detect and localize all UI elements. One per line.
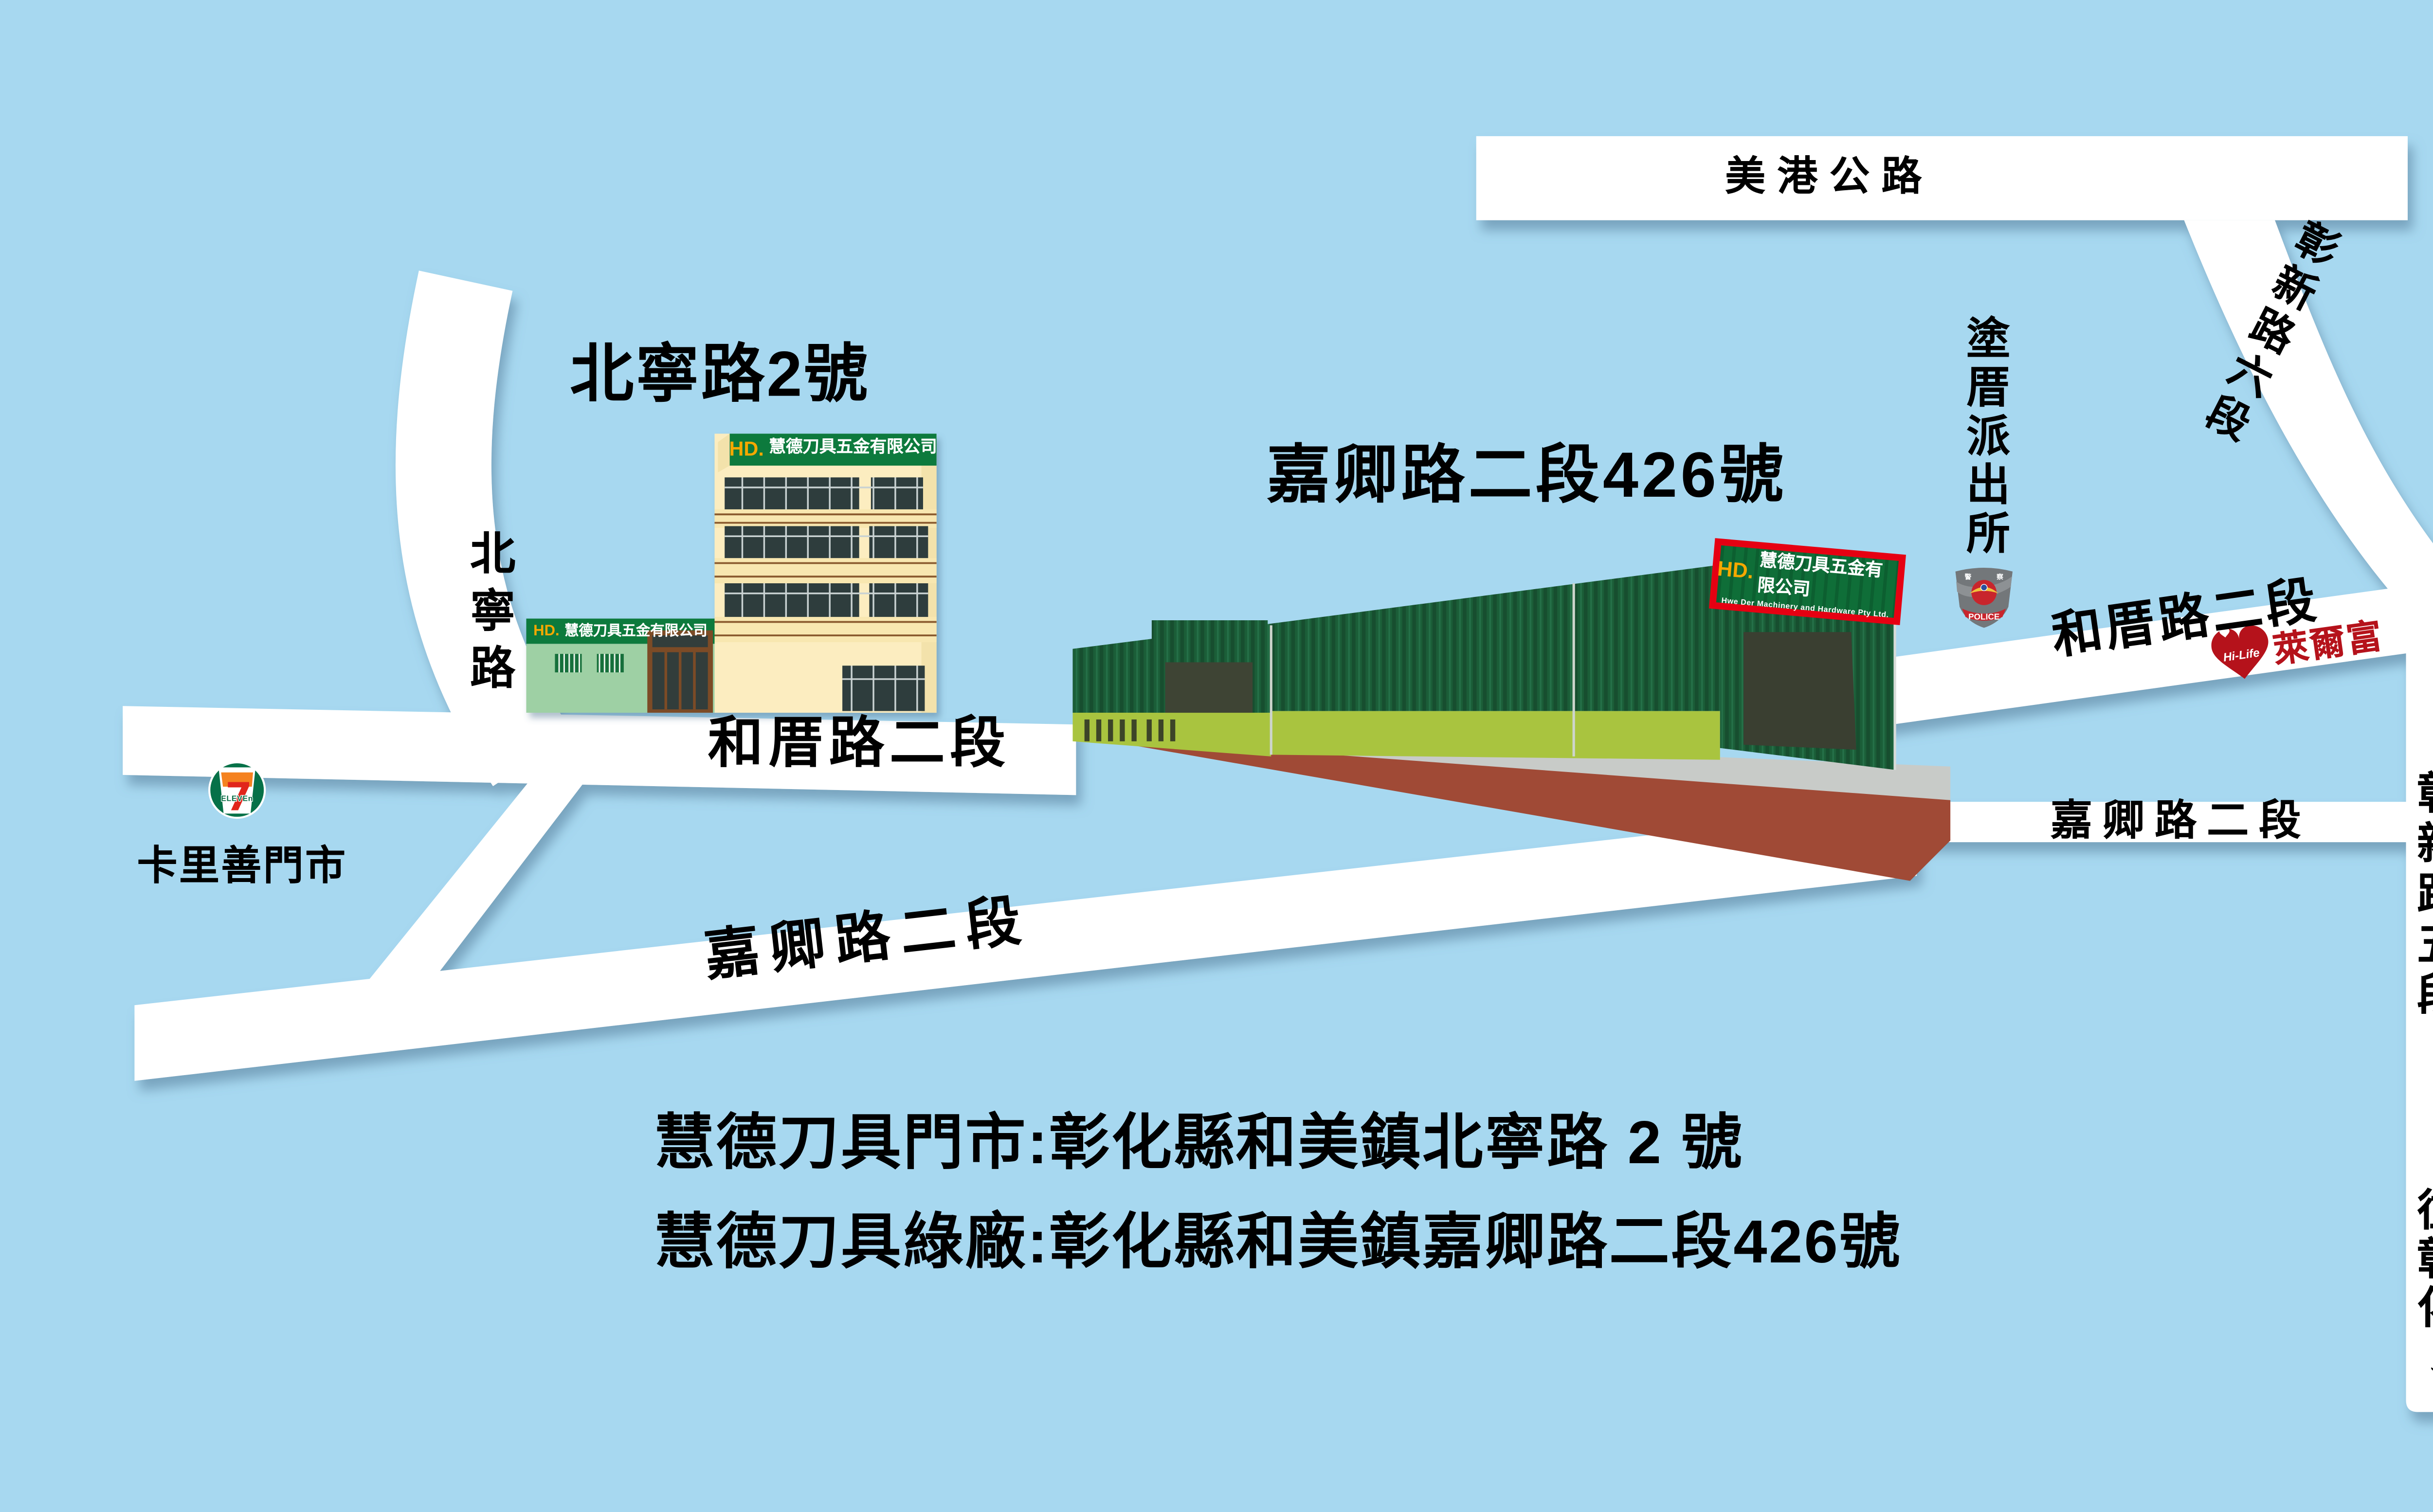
store-roofsign-name: 慧德刀具五金有限公司 [769, 441, 937, 459]
police-badge-right-char: 察 [1997, 573, 2003, 580]
store-roofsign-hd: HD. [729, 439, 763, 461]
road-label-jiaqing-right: 嘉卿路二段 [2051, 799, 2311, 845]
factory-main-wall [1271, 565, 1720, 711]
road-label-to-changhua: 往彰化↓ [2413, 1187, 2433, 1388]
police-label: 塗厝派出所 [1962, 315, 2009, 559]
storefront-sign-text: HD. 慧德刀具五金有限公司 [527, 619, 715, 644]
police-badge-icon: 警 察 POLICE [1956, 568, 2013, 628]
storefront-sign-hd: HD. [533, 623, 560, 640]
seven-eleven-icon: 7 ELEVEn [209, 762, 265, 819]
factory-sign-hd: HD. [1716, 557, 1754, 584]
road-meigang [1476, 136, 2408, 220]
police-badge-text: POLICE [1968, 612, 1999, 621]
footer-line1: 慧德刀具門市:彰化縣和美鎮北寧路 2 號 [654, 1111, 1743, 1176]
footer-line2: 慧德刀具綠廠:彰化縣和美鎮嘉卿路二段426號 [654, 1210, 1902, 1276]
factory-main-olive [1271, 711, 1720, 760]
factory-sign-name: 慧德刀具五金有限公司 [1756, 547, 1900, 610]
storefront-grille-1 [555, 654, 581, 672]
road-label-beining: 北寧路 [463, 529, 512, 701]
store-building [527, 433, 937, 713]
seven-icon-eleven: ELEVEn [221, 794, 253, 803]
police-badge-left-char: 警 [1965, 573, 1972, 580]
seven-eleven-label: 卡里善門市 [137, 846, 347, 889]
factory-address-label: 嘉卿路二段426號 [1267, 443, 1787, 512]
factory-doorway [1743, 632, 1856, 750]
store-address-label: 北寧路2號 [570, 342, 870, 411]
road-label-meigang: 美港公路 [1725, 157, 1933, 200]
road-label-zhangxin5: 彰新路五段 [2413, 770, 2433, 1022]
map-canvas: 7 ELEVEn 警 察 POLICE Hi-Life 美港公路 彰新路六段 彰… [0, 0, 2433, 1512]
storefront-sign-name: 慧德刀具五金有限公司 [564, 624, 708, 639]
store-roofsign-text: HD. 慧德刀具五金有限公司 [730, 433, 937, 466]
road-label-hecuo-left: 和厝路二段 [708, 713, 1011, 773]
factory-tower-door [1165, 662, 1253, 713]
storefront-grille-2 [597, 654, 624, 672]
map-graphics: 7 ELEVEn 警 察 POLICE Hi-Life [0, 0, 2433, 1512]
